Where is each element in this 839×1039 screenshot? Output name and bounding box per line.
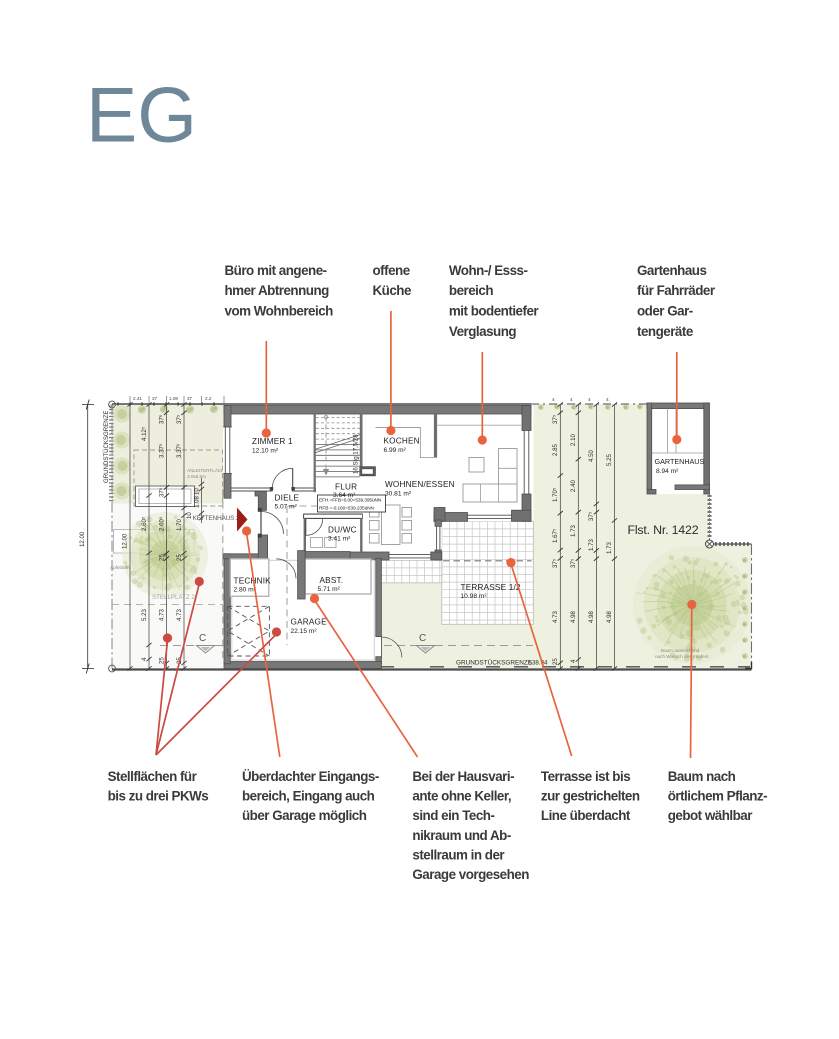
svg-text:2.40: 2.40 [570, 480, 577, 492]
svg-text:37: 37 [152, 396, 158, 401]
svg-text:1.73: 1.73 [588, 539, 595, 551]
svg-text:Flst. Nr. 1422: Flst. Nr. 1422 [628, 523, 699, 537]
svg-text:GARTENHAUS: GARTENHAUS [655, 457, 705, 466]
svg-text:30.81 m²: 30.81 m² [385, 491, 412, 498]
svg-text:3.37⁵: 3.37⁵ [158, 443, 165, 458]
svg-text:22.15 m²: 22.15 m² [291, 628, 318, 635]
svg-text:25: 25 [552, 658, 559, 665]
svg-text:FLUR: FLUR [335, 483, 357, 492]
svg-text:C: C [199, 633, 206, 644]
svg-text:ABST.: ABST. [320, 576, 344, 585]
svg-text:Terrasse ist biszur gestrichel: Terrasse ist biszur gestricheltenLine üb… [541, 769, 640, 823]
svg-text:RFB =-0.160=539.235üNN: RFB =-0.160=539.235üNN [319, 506, 375, 512]
svg-text:5.25: 5.25 [606, 454, 613, 466]
svg-text:8.94 m²: 8.94 m² [656, 468, 679, 475]
svg-text:4.98: 4.98 [570, 611, 577, 623]
svg-text:37⁵: 37⁵ [552, 414, 559, 424]
svg-text:4.98: 4.98 [606, 611, 613, 623]
svg-text:3.0x5.8m: 3.0x5.8m [187, 474, 206, 479]
svg-text:25: 25 [158, 657, 165, 664]
svg-text:KOCHEN: KOCHEN [384, 437, 420, 446]
svg-text:GRUNDSTÜCKSGRENZE: GRUNDSTÜCKSGRENZE [103, 411, 110, 483]
svg-text:4: 4 [570, 397, 573, 403]
svg-text:3.41 m²: 3.41 m² [328, 536, 351, 543]
svg-text:STELLPLATZ 2: STELLPLATZ 2 [152, 594, 195, 601]
svg-text:5.07 m²: 5.07 m² [275, 504, 298, 511]
svg-text:12.00: 12.00 [79, 531, 86, 547]
svg-text:WOHNEN/ESSEN: WOHNEN/ESSEN [385, 480, 455, 489]
svg-text:2.60⁵: 2.60⁵ [158, 516, 165, 531]
svg-text:1.08: 1.08 [169, 396, 178, 401]
svg-text:Apfeldorn: Apfeldorn [110, 565, 130, 570]
svg-text:37⁵: 37⁵ [588, 511, 595, 521]
svg-text:2.10: 2.10 [570, 434, 577, 446]
svg-text:37⁵: 37⁵ [570, 558, 577, 568]
svg-text:10: 10 [193, 488, 200, 495]
svg-text:3.37⁶: 3.37⁶ [176, 443, 183, 458]
svg-text:5.71 m²: 5.71 m² [318, 586, 341, 593]
svg-text:1.73: 1.73 [570, 525, 577, 537]
svg-text:25: 25 [158, 554, 165, 561]
svg-text:2.41: 2.41 [133, 396, 142, 401]
svg-text:4.73: 4.73 [552, 611, 559, 623]
svg-text:GRUNDSTÜCKSGRENZE: GRUNDSTÜCKSGRENZE [456, 659, 532, 667]
svg-text:25: 25 [176, 554, 183, 561]
svg-text:C: C [419, 633, 426, 644]
svg-text:4.73: 4.73 [176, 609, 183, 621]
svg-text:5.23: 5.23 [141, 609, 148, 621]
svg-text:10.98 m²: 10.98 m² [461, 593, 488, 600]
svg-text:1.08: 1.08 [193, 496, 200, 508]
svg-text:37⁵: 37⁵ [552, 558, 559, 568]
svg-text:4.12⁵: 4.12⁵ [141, 426, 148, 441]
svg-text:DIELE: DIELE [275, 494, 300, 503]
svg-text:1.73: 1.73 [606, 542, 613, 554]
svg-text:Büro mit angene-hmer Abtrennun: Büro mit angene-hmer Abtrennungvom Wohnb… [225, 263, 334, 319]
svg-text:12.10 m²: 12.10 m² [252, 448, 279, 455]
svg-text:TERRASSE 1/2: TERRASSE 1/2 [461, 583, 521, 592]
svg-text:4: 4 [606, 397, 609, 403]
svg-text:16 Stg 17,5/28: 16 Stg 17,5/28 [353, 434, 360, 474]
svg-text:4: 4 [588, 397, 591, 403]
svg-text:1.67⁵: 1.67⁵ [552, 528, 559, 543]
svg-text:EG: EG [86, 71, 197, 159]
svg-text:2.60⁵: 2.60⁵ [141, 516, 148, 531]
svg-text:4.73: 4.73 [158, 609, 165, 621]
svg-text:4: 4 [552, 397, 555, 403]
svg-text:6.99 m²: 6.99 m² [384, 447, 407, 454]
svg-text:37: 37 [187, 396, 193, 401]
svg-text:3.64 m²: 3.64 m² [333, 492, 356, 499]
svg-text:nach Wunsch des Käufers: nach Wunsch des Käufers [655, 654, 709, 659]
svg-text:GARAGE: GARAGE [291, 618, 328, 627]
svg-text:DU/WC: DU/WC [328, 526, 357, 535]
svg-text:4.98: 4.98 [588, 611, 595, 623]
svg-text:Baum ausreichend: Baum ausreichend [661, 648, 700, 653]
svg-text:2.2: 2.2 [205, 396, 212, 401]
svg-text:1.70: 1.70 [176, 519, 183, 531]
svg-text:ANLEITERFLÄCHE: ANLEITERFLÄCHE [187, 467, 228, 473]
svg-text:2.85: 2.85 [552, 444, 559, 456]
svg-text:37⁶: 37⁶ [158, 414, 165, 424]
svg-text:1.70⁵: 1.70⁵ [552, 487, 559, 502]
svg-text:4.50: 4.50 [588, 450, 595, 462]
svg-text:ZIMMER 1: ZIMMER 1 [252, 437, 293, 446]
svg-text:2.80 m²: 2.80 m² [234, 587, 257, 594]
svg-text:TECHNIK: TECHNIK [234, 577, 272, 586]
svg-text:KETTENHAUS 2: KETTENHAUS 2 [193, 515, 240, 522]
svg-text:12.00: 12.00 [122, 533, 129, 549]
svg-text:538.94: 538.94 [529, 660, 548, 667]
svg-text:37⁵: 37⁵ [158, 487, 165, 497]
svg-text:37⁵: 37⁵ [176, 414, 183, 424]
svg-text:Überdachter Eingangs-bereich,: Überdachter Eingangs-bereich, Eingang au… [242, 769, 379, 823]
